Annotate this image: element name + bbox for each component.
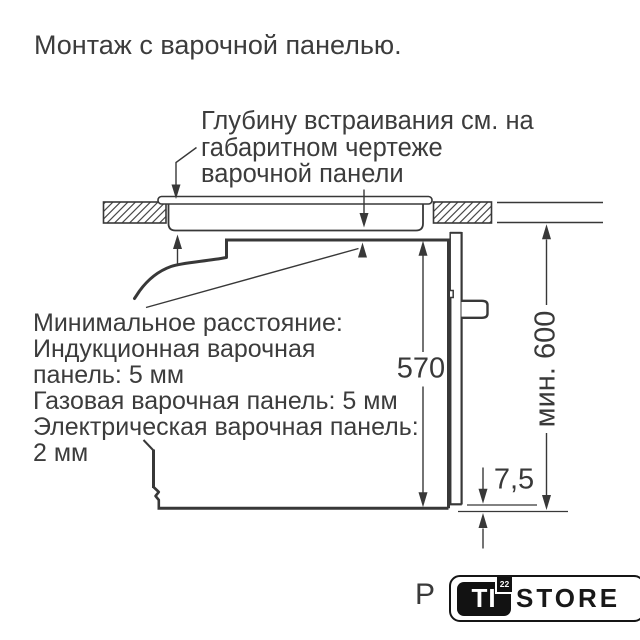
installation-diagram-page: Монтаж с варочной панелью. Глубину встра… [0, 0, 640, 640]
cabinet-left-wall-notch [154, 487, 159, 508]
logo-ti-text: TI [471, 583, 496, 614]
depth-note-line: варочной панели [201, 161, 534, 188]
page-marker: P [415, 578, 435, 612]
min-distance-line: Газовая варочная панель: 5 мм [33, 388, 419, 414]
dimension-label-min-600: мин. 600 [530, 311, 563, 428]
dimension-label-7-5: 7,5 [494, 464, 534, 497]
hob-glass-top [158, 197, 432, 205]
depth-note: Глубину встраивания см. на габаритном че… [201, 108, 534, 188]
worktop-left-section [104, 202, 167, 223]
min-distance-line: панель: 5 мм [33, 362, 419, 388]
min-distance-line: 2 мм [33, 440, 419, 466]
door-inner-edge [450, 232, 453, 504]
door-handle [462, 301, 488, 318]
depth-note-leader-line [176, 148, 197, 186]
page-title: Монтаж с варочной панелью. [34, 30, 402, 61]
min-distance-arrow-icon [358, 243, 367, 258]
depth-note-line: Глубину встраивания см. на [201, 108, 534, 135]
ti-store-logo: TI 22 STORE [449, 575, 640, 622]
dimension-label-570: 570 [397, 353, 445, 386]
depth-note-line: габаритном чертеже [201, 135, 534, 162]
worktop-right-edge-lines [497, 203, 603, 223]
hob-tub [169, 204, 424, 231]
logo-store-text: STORE [516, 583, 620, 614]
min-gap-arrow-icon [173, 235, 182, 250]
min-distance-line: Индукционная варочная [33, 336, 419, 362]
worktop-right-section [434, 202, 492, 223]
min-distance-line: Электрическая варочная панель: [33, 414, 419, 440]
logo-ti-block: TI 22 [457, 582, 511, 616]
min-distance-line: Минимальное расстояние: [33, 310, 419, 336]
logo-badge-text: 22 [500, 580, 509, 589]
min-distance-note: Минимальное расстояние: Индукционная вар… [33, 310, 419, 466]
logo-22-badge: 22 [495, 577, 512, 594]
